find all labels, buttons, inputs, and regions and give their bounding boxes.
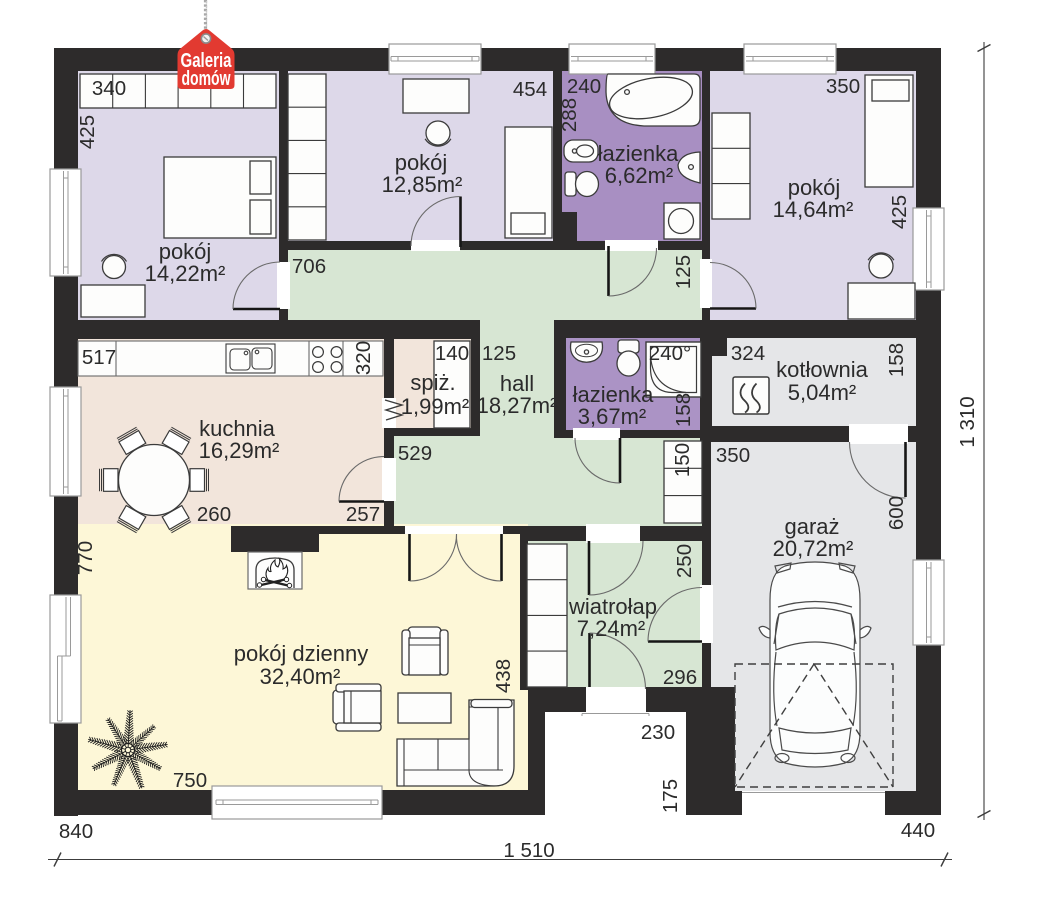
svg-text:3,67m²: 3,67m² [578,404,646,429]
svg-text:440: 440 [901,819,935,842]
svg-text:454: 454 [513,78,547,101]
svg-text:125: 125 [482,342,516,365]
svg-text:438: 438 [492,659,515,693]
svg-text:840: 840 [59,820,93,843]
svg-text:150: 150 [671,443,694,477]
svg-text:12,85m²: 12,85m² [382,172,463,197]
svg-text:175: 175 [659,779,682,813]
svg-text:125: 125 [672,255,695,289]
svg-text:230: 230 [641,721,675,744]
svg-text:1,99m²: 1,99m² [401,394,469,419]
svg-text:kotłownia: kotłownia [776,357,868,382]
svg-text:158: 158 [885,343,908,377]
svg-text:340: 340 [92,77,126,100]
svg-text:324: 324 [731,342,765,365]
svg-text:288: 288 [558,98,581,132]
svg-text:158: 158 [672,393,695,427]
svg-text:257: 257 [346,503,380,526]
svg-text:spiż.: spiż. [410,370,455,395]
svg-text:770: 770 [74,541,97,575]
svg-text:14,22m²: 14,22m² [145,261,226,286]
svg-text:18,27m²: 18,27m² [477,393,558,418]
svg-text:domów: domów [182,68,231,90]
svg-text:140: 140 [435,342,469,365]
svg-text:750: 750 [173,769,207,792]
svg-text:260: 260 [197,503,231,526]
svg-text:296: 296 [663,666,697,689]
svg-text:425: 425 [76,115,99,149]
svg-text:16,29m²: 16,29m² [199,438,280,463]
svg-text:6,62m²: 6,62m² [605,163,673,188]
svg-text:1 310: 1 310 [956,396,979,447]
svg-text:320: 320 [352,341,375,375]
svg-text:350: 350 [716,444,750,467]
svg-text:240°: 240° [649,342,691,365]
svg-text:517: 517 [82,346,116,369]
svg-text:350: 350 [826,75,860,98]
svg-text:pokój dzienny: pokój dzienny [234,641,369,666]
svg-text:1 510: 1 510 [503,839,554,862]
svg-text:529: 529 [398,442,432,465]
svg-text:425: 425 [888,195,911,229]
svg-text:32,40m²: 32,40m² [260,664,341,689]
svg-text:600: 600 [885,496,908,530]
svg-text:7,24m²: 7,24m² [577,616,645,641]
svg-text:5,04m²: 5,04m² [788,380,856,405]
svg-text:20,72m²: 20,72m² [773,536,854,561]
svg-text:14,64m²: 14,64m² [773,197,854,222]
svg-text:250: 250 [673,544,696,578]
svg-text:240: 240 [567,75,601,98]
svg-text:706: 706 [292,255,326,278]
